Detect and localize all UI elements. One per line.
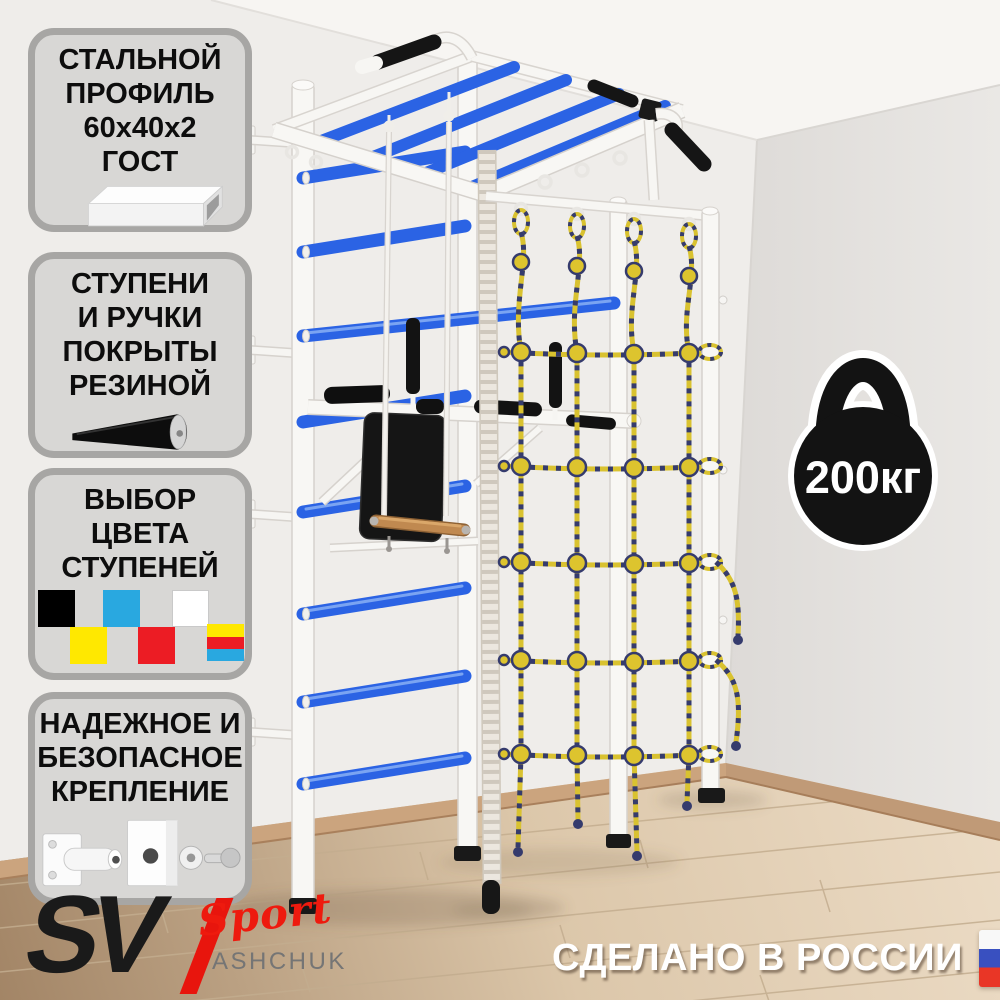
badge-text: И РУЧКИ <box>35 301 245 335</box>
brand-logo: SV Sport ASHCHUK <box>26 888 326 1000</box>
swatch-blue <box>103 590 140 627</box>
net-pole-foot <box>698 788 725 803</box>
russia-flag-icon <box>979 930 1000 987</box>
badge-text: СТАЛЬНОЙ <box>35 43 245 77</box>
net-pole <box>702 210 719 794</box>
badge-text: РЕЗИНОЙ <box>35 369 245 403</box>
swatch-striped <box>207 624 244 661</box>
badge-text: ПОКРЫТЫ <box>35 335 245 369</box>
rubber-grip-icon <box>40 407 240 457</box>
armrest-pad-left <box>324 385 391 404</box>
right-post <box>458 58 477 852</box>
feature-badge-color-choice: ВЫБОР ЦВЕТА СТУПЕНЕЙ <box>28 468 252 680</box>
outrigger-post <box>610 200 627 840</box>
right-post-foot <box>454 846 481 861</box>
brand-name-rest: ASHCHUK <box>212 948 347 976</box>
brand-initials: SV <box>16 880 166 990</box>
rope-end-cap <box>482 880 500 914</box>
badge-text: ПРОФИЛЬ <box>35 77 245 111</box>
swatch-yellow <box>70 627 107 664</box>
badge-text: ВЫБОР <box>35 483 245 517</box>
weight-value: 200кг <box>805 452 921 503</box>
kettlebell-icon: 200кг <box>778 346 948 552</box>
product-card: СТАЛЬНОЙ ПРОФИЛЬ 60х40х2 ГОСТ СТУПЕНИ И … <box>0 0 1000 1000</box>
vertical-handle-left <box>406 318 420 394</box>
feature-badge-steel-profile: СТАЛЬНОЙ ПРОФИЛЬ 60х40х2 ГОСТ <box>28 28 252 232</box>
steel-profile-icon <box>40 183 240 231</box>
swatch-red <box>138 627 175 664</box>
made-in-label: СДЕЛАНО В РОССИИ <box>552 937 963 980</box>
badge-text: СТУПЕНЕЙ <box>35 551 245 585</box>
badge-text: ЦВЕТА <box>35 517 245 551</box>
feature-badge-rubber-steps: СТУПЕНИ И РУЧКИ ПОКРЫТЫ РЕЗИНОЙ <box>28 252 252 458</box>
brand-script: Sport <box>196 883 335 946</box>
badge-text: СТУПЕНИ <box>35 267 245 301</box>
made-in-russia: СДЕЛАНО В РОССИИ <box>552 930 1000 987</box>
swatch-black <box>38 590 75 627</box>
badge-text: НАДЕЖНОЕ И <box>35 707 245 741</box>
outrigger-post-foot <box>606 834 631 848</box>
swatch-white <box>172 590 209 627</box>
weight-capacity-badge: 200кг <box>778 346 948 552</box>
badge-text: БЕЗОПАСНОЕ <box>35 741 245 775</box>
badge-text: КРЕПЛЕНИЕ <box>35 775 245 809</box>
armrest-pad-mid <box>416 399 444 414</box>
badge-text: ГОСТ <box>35 145 245 179</box>
badge-text: 60х40х2 <box>35 111 245 145</box>
